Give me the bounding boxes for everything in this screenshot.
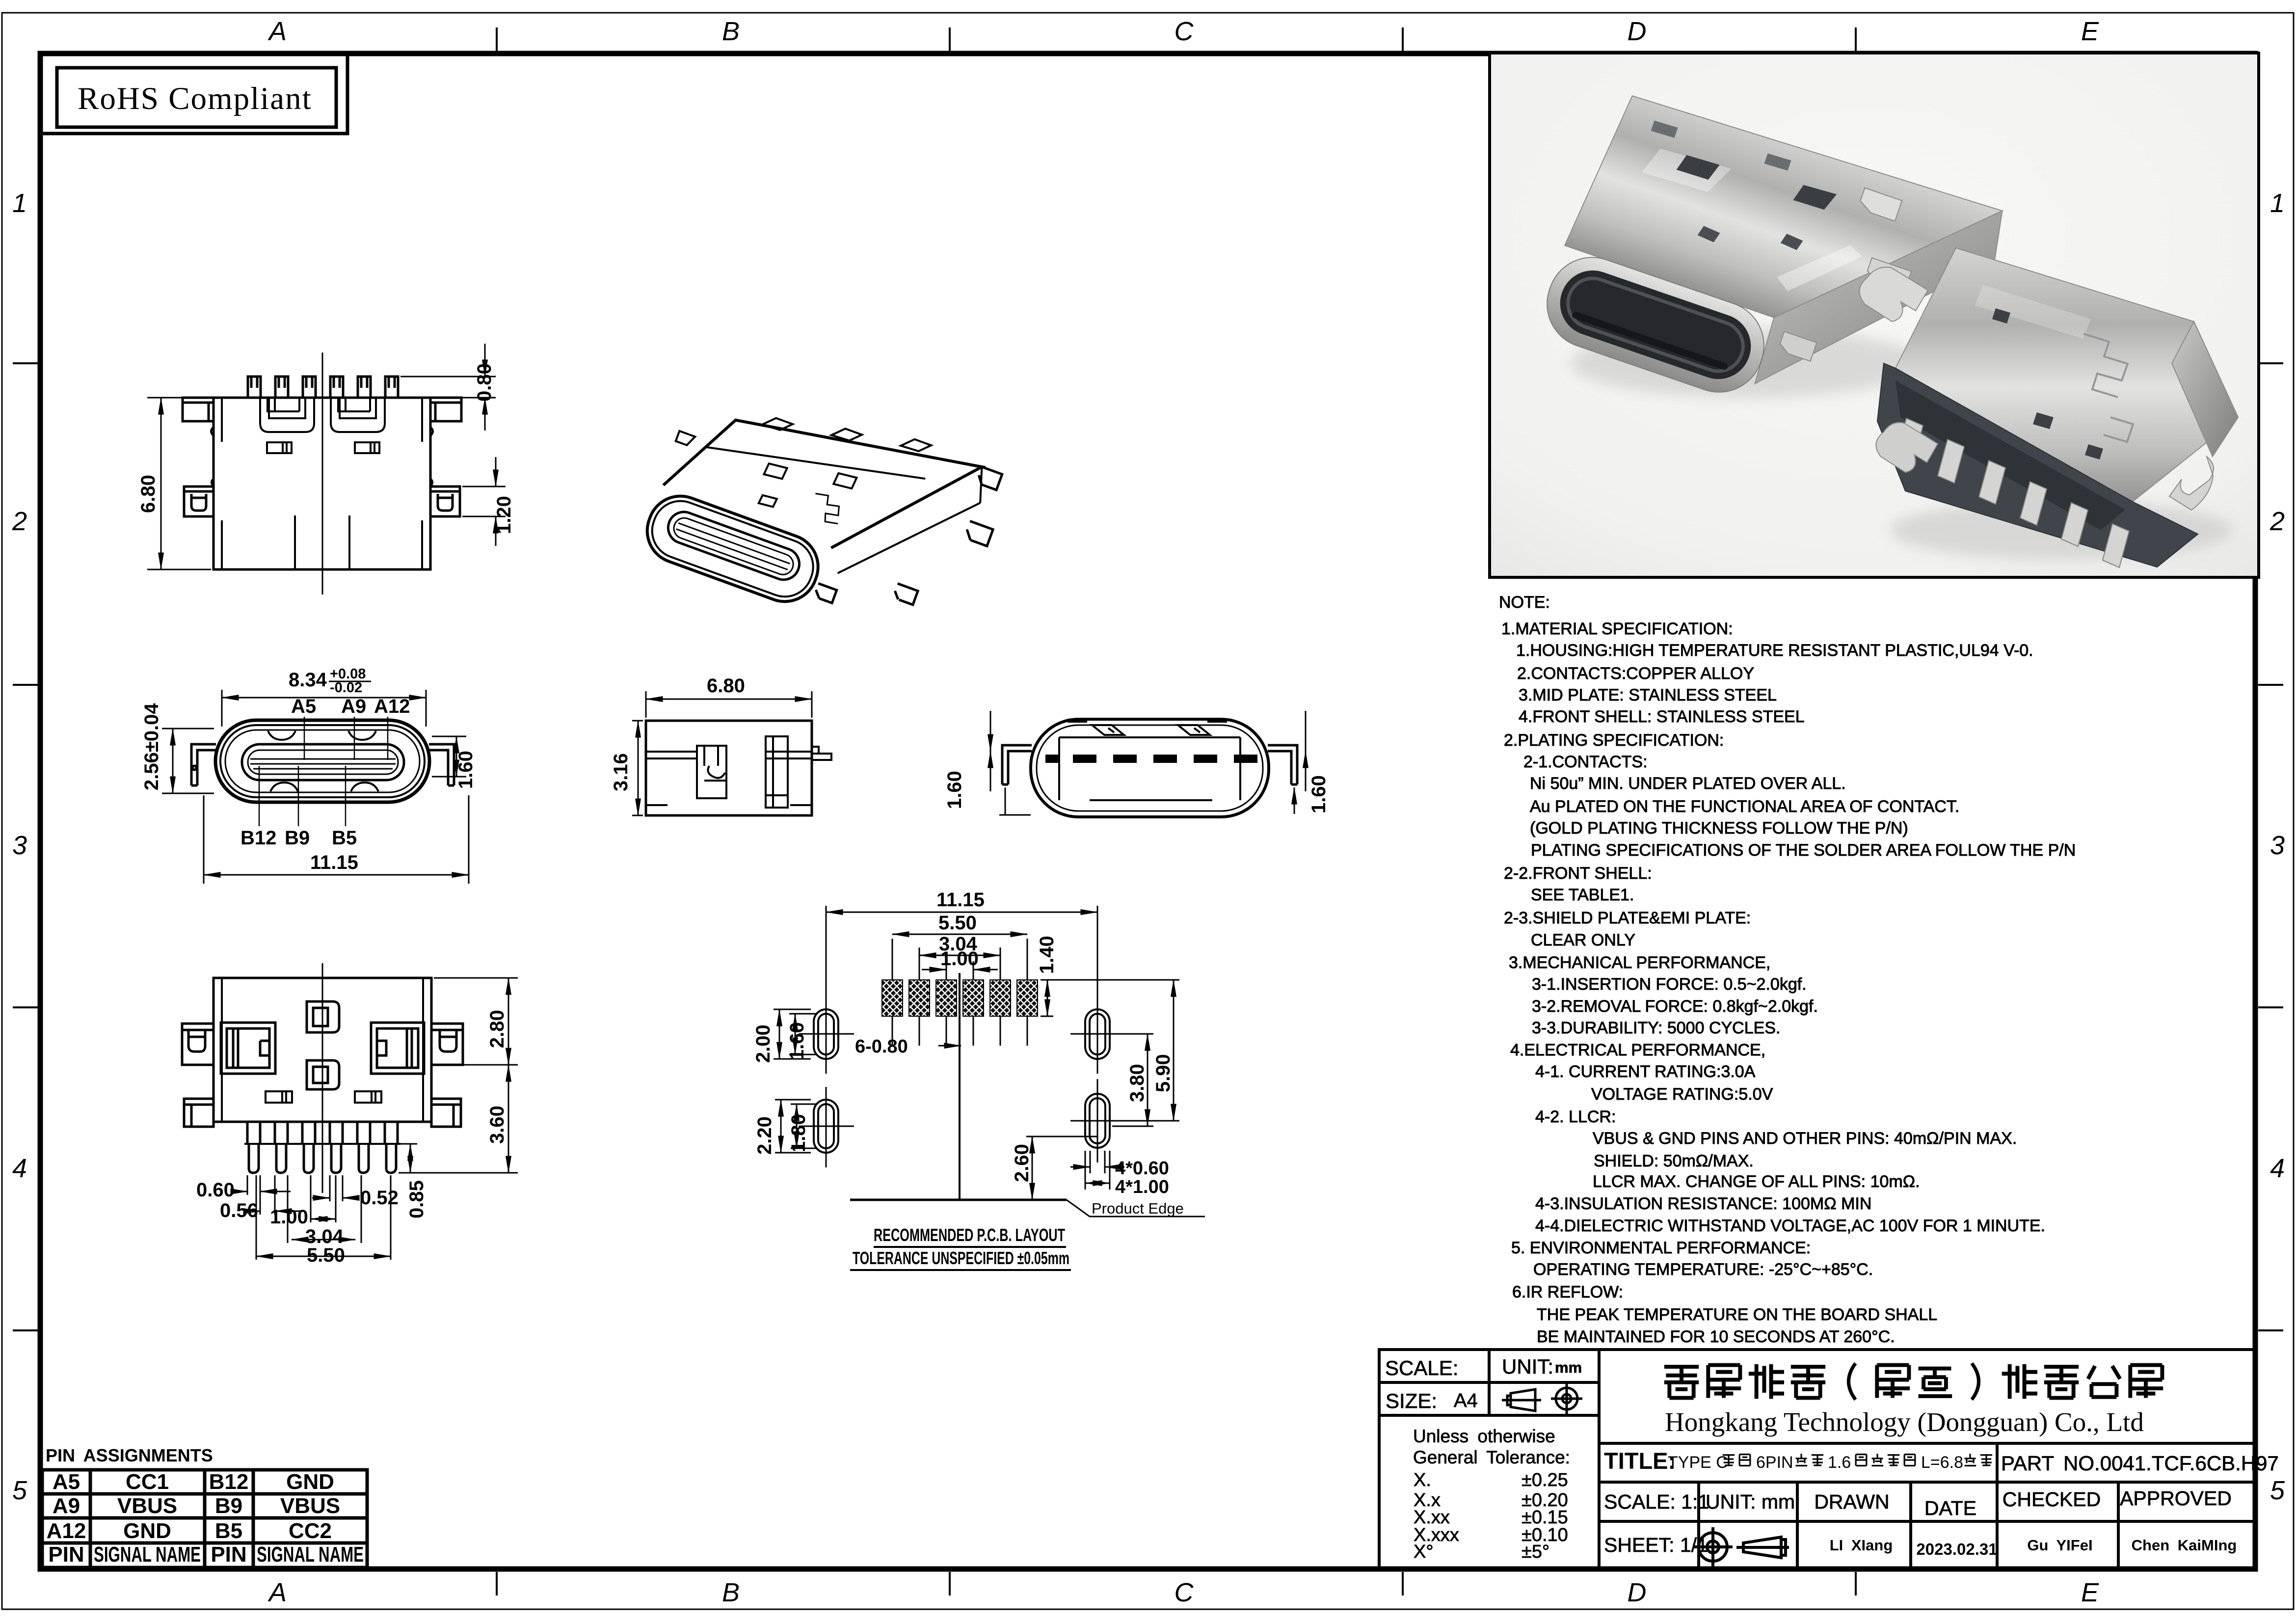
svg-text:±5°: ±5° xyxy=(1522,1542,1549,1562)
svg-text:0.85: 0.85 xyxy=(406,1180,427,1218)
svg-text:TITLE:: TITLE: xyxy=(1604,1448,1676,1474)
svg-text:B12: B12 xyxy=(209,1470,249,1494)
svg-text:6.80: 6.80 xyxy=(707,675,745,697)
svg-text:2.CONTACTS:COPPER ALLOY: 2.CONTACTS:COPPER ALLOY xyxy=(1517,664,1754,683)
svg-text:2-1.CONTACTS:: 2-1.CONTACTS: xyxy=(1523,753,1648,771)
svg-text:A: A xyxy=(267,17,287,46)
svg-text:4: 4 xyxy=(2270,1154,2285,1183)
svg-text:3-2.REMOVAL FORCE: 0.8kgf~2.0k: 3-2.REMOVAL FORCE: 0.8kgf~2.0kgf. xyxy=(1532,997,1818,1016)
svg-text:LI XIang: LI XIang xyxy=(1830,1537,1893,1554)
svg-text:1: 1 xyxy=(2270,189,2285,218)
svg-text:1.60: 1.60 xyxy=(1308,775,1330,813)
svg-text:3.MID PLATE: STAINLESS STEEL: 3.MID PLATE: STAINLESS STEEL xyxy=(1519,686,1777,704)
svg-text:0.60: 0.60 xyxy=(196,1179,235,1201)
svg-text:0.52: 0.52 xyxy=(360,1187,399,1209)
svg-text:X°: X° xyxy=(1414,1542,1434,1562)
svg-text:4*0.60: 4*0.60 xyxy=(1115,1158,1169,1179)
svg-text:DRAWN: DRAWN xyxy=(1814,1490,1889,1513)
svg-text:RoHS Compliant: RoHS Compliant xyxy=(78,81,312,116)
svg-text:NOTE:: NOTE: xyxy=(1499,593,1550,612)
svg-text:B12: B12 xyxy=(240,827,276,849)
svg-text:B: B xyxy=(722,17,740,46)
svg-text:CLEAR ONLY: CLEAR ONLY xyxy=(1531,931,1635,949)
svg-text:DATE: DATE xyxy=(1924,1497,1976,1519)
svg-text:6-0.80: 6-0.80 xyxy=(855,1036,908,1057)
svg-text:D: D xyxy=(1628,1578,1647,1607)
svg-text:2.PLATING SPECIFICATION:: 2.PLATING SPECIFICATION: xyxy=(1504,731,1724,750)
svg-text:C: C xyxy=(1175,17,1194,46)
svg-text:3-3.DURABILITY: 5000 CYCLES.: 3-3.DURABILITY: 5000 CYCLES. xyxy=(1532,1019,1780,1037)
svg-text:VBUS & GND PINS AND OTHER PINS: VBUS & GND PINS AND OTHER PINS: 40mΩ/PIN… xyxy=(1593,1129,2017,1148)
svg-text:1.6: 1.6 xyxy=(1828,1453,1851,1472)
svg-text:8.34: 8.34 xyxy=(289,669,327,691)
svg-text:SHEET: 1/1: SHEET: 1/1 xyxy=(1604,1534,1708,1556)
svg-text:SIZE:: SIZE: xyxy=(1386,1389,1437,1412)
svg-text:VOLTAGE RATING:5.0V: VOLTAGE RATING:5.0V xyxy=(1591,1085,1773,1104)
svg-text:LLCR MAX. CHANGE OF ALL PINS:: LLCR MAX. CHANGE OF ALL PINS: 10mΩ. xyxy=(1593,1172,1920,1191)
svg-text:3.MECHANICAL PERFORMANCE,: 3.MECHANICAL PERFORMANCE, xyxy=(1509,953,1770,972)
svg-text:Ni 50u” MIN. UNDER PLATED OVER: Ni 50u” MIN. UNDER PLATED OVER ALL. xyxy=(1530,774,1846,793)
svg-text:6.IR REFLOW:: 6.IR REFLOW: xyxy=(1512,1283,1623,1301)
svg-text:D: D xyxy=(1628,17,1647,46)
svg-text:4-2. LLCR:: 4-2. LLCR: xyxy=(1535,1108,1616,1126)
svg-text:E: E xyxy=(2081,17,2099,46)
svg-text:SIGNAL NAME: SIGNAL NAME xyxy=(257,1542,364,1567)
svg-text:GND: GND xyxy=(286,1470,334,1494)
svg-text:APPROVED: APPROVED xyxy=(2120,1487,2232,1510)
svg-text:X.: X. xyxy=(1414,1470,1431,1490)
svg-text:2.60: 2.60 xyxy=(1011,1144,1033,1182)
svg-text:5.50: 5.50 xyxy=(307,1244,345,1266)
svg-text:VBUS: VBUS xyxy=(117,1494,177,1518)
svg-text:2.20: 2.20 xyxy=(754,1116,775,1155)
svg-text:UNIT:: UNIT: xyxy=(1502,1355,1553,1378)
svg-text:PIN: PIN xyxy=(48,1542,84,1567)
svg-text:2.56±0.04: 2.56±0.04 xyxy=(141,703,162,790)
svg-text:Unless otherwise: Unless otherwise xyxy=(1413,1426,1555,1446)
svg-text:6.80: 6.80 xyxy=(137,475,159,513)
svg-text:1.00: 1.00 xyxy=(940,948,979,970)
svg-text:GND: GND xyxy=(123,1519,171,1543)
svg-text:5: 5 xyxy=(2270,1476,2285,1505)
svg-text:1.MATERIAL SPECIFICATION:: 1.MATERIAL SPECIFICATION: xyxy=(1501,620,1733,638)
svg-text:L=6.8: L=6.8 xyxy=(1921,1453,1963,1472)
svg-text:Gu YIFeI: Gu YIFeI xyxy=(2027,1537,2092,1554)
svg-text:A4: A4 xyxy=(1454,1390,1478,1411)
svg-text:5.50: 5.50 xyxy=(938,912,977,934)
svg-text:4-1. CURRENT RATING:3.0A: 4-1. CURRENT RATING:3.0A xyxy=(1535,1062,1756,1081)
svg-text:0.80: 0.80 xyxy=(474,363,495,402)
svg-text:A9: A9 xyxy=(341,696,366,717)
svg-text:Chen KaiMIng: Chen KaiMIng xyxy=(2132,1537,2237,1554)
svg-text:0.56: 0.56 xyxy=(220,1200,258,1221)
svg-text:A5: A5 xyxy=(291,696,316,717)
svg-text:A: A xyxy=(267,1578,287,1607)
svg-text:4.ELECTRICAL PERFORMANCE,: 4.ELECTRICAL PERFORMANCE, xyxy=(1510,1041,1765,1059)
svg-text:2023.02.31: 2023.02.31 xyxy=(1916,1540,1997,1558)
svg-text:B9: B9 xyxy=(215,1494,242,1518)
svg-text:3: 3 xyxy=(12,831,27,860)
svg-text:CC1: CC1 xyxy=(126,1470,169,1494)
svg-text:2-3.SHIELD PLATE&EMI PLATE:: 2-3.SHIELD PLATE&EMI PLATE: xyxy=(1504,909,1751,927)
svg-text:4.FRONT SHELL: STAINLESS STEEL: 4.FRONT SHELL: STAINLESS STEEL xyxy=(1519,707,1805,726)
svg-text:RECOMMENDED P.C.B. LAYOUT: RECOMMENDED P.C.B. LAYOUT xyxy=(874,1225,1065,1245)
svg-text:6PIN: 6PIN xyxy=(1756,1453,1793,1472)
svg-text:2-2.FRONT SHELL:: 2-2.FRONT SHELL: xyxy=(1504,864,1652,883)
svg-text:1.HOUSING:HIGH TEMPERATURE RES: 1.HOUSING:HIGH TEMPERATURE RESISTANT PLA… xyxy=(1516,641,2033,660)
svg-text:11.15: 11.15 xyxy=(310,852,358,873)
svg-text:A12: A12 xyxy=(47,1519,86,1543)
svg-text:C: C xyxy=(1175,1578,1194,1607)
svg-text:1.60: 1.60 xyxy=(944,771,965,809)
svg-text:5.90: 5.90 xyxy=(1152,1054,1174,1092)
svg-text:mm: mm xyxy=(1555,1359,1582,1376)
svg-text:General Tolerance:: General Tolerance: xyxy=(1413,1447,1570,1467)
svg-text:2: 2 xyxy=(2269,507,2285,536)
svg-text:2: 2 xyxy=(12,507,27,536)
svg-text:(GOLD PLATING THICKNESS FOLLOW: (GOLD PLATING THICKNESS FOLLOW THE P/N) xyxy=(1530,819,1908,838)
svg-text:CC2: CC2 xyxy=(289,1519,332,1543)
svg-text:4-3.INSULATION RESISTANCE: 100: 4-3.INSULATION RESISTANCE: 100MΩ MIN xyxy=(1535,1194,1871,1213)
svg-text:PIN: PIN xyxy=(211,1542,246,1567)
svg-text:1.60: 1.60 xyxy=(786,1022,808,1060)
svg-text:3.80: 3.80 xyxy=(1126,1064,1148,1102)
svg-text:Au PLATED ON THE FUNCTIONAL AR: Au PLATED ON THE FUNCTIONAL AREA OF CONT… xyxy=(1530,797,1959,816)
svg-text:4: 4 xyxy=(12,1154,27,1183)
svg-text:BE MAINTAINED FOR 10 SECONDS A: BE MAINTAINED FOR 10 SECONDS AT 260°C. xyxy=(1537,1327,1895,1346)
svg-text:±0.25: ±0.25 xyxy=(1522,1470,1568,1490)
svg-text:SEE TABLE1.: SEE TABLE1. xyxy=(1531,886,1634,904)
svg-text:3: 3 xyxy=(2270,831,2285,860)
svg-text:Hongkang Technology (Dongguan): Hongkang Technology (Dongguan) Co., Ltd xyxy=(1665,1407,2144,1437)
svg-text:THE PEAK TEMPERATURE ON THE BO: THE PEAK TEMPERATURE ON THE BOARD SHALL xyxy=(1537,1305,1937,1324)
svg-text:4*1.00: 4*1.00 xyxy=(1115,1177,1169,1197)
svg-text:CHECKED: CHECKED xyxy=(2002,1488,2101,1511)
svg-text:1.80: 1.80 xyxy=(788,1114,809,1152)
svg-text:PART NO.0041.TCF.6CB.H97: PART NO.0041.TCF.6CB.H97 xyxy=(2001,1452,2279,1475)
svg-text:2.80: 2.80 xyxy=(486,1010,508,1048)
svg-text:OPERATING TEMPERATURE: -25°C~+: OPERATING TEMPERATURE: -25°C~+85°C. xyxy=(1533,1260,1873,1279)
svg-text:PLATING SPECIFICATIONS OF THE: PLATING SPECIFICATIONS OF THE SOLDER ARE… xyxy=(1531,841,2076,860)
svg-text:Product Edge: Product Edge xyxy=(1092,1200,1184,1217)
svg-text:A9: A9 xyxy=(53,1494,80,1518)
svg-text:11.15: 11.15 xyxy=(936,889,985,911)
svg-text:1: 1 xyxy=(12,189,27,218)
svg-text:UNIT: mm: UNIT: mm xyxy=(1706,1490,1795,1513)
svg-text:1.60: 1.60 xyxy=(455,751,477,789)
svg-text:SIGNAL NAME: SIGNAL NAME xyxy=(94,1542,201,1567)
svg-text:3.60: 3.60 xyxy=(486,1106,508,1144)
svg-text:5. ENVIRONMENTAL PERFORMANCE:: 5. ENVIRONMENTAL PERFORMANCE: xyxy=(1511,1239,1811,1257)
svg-text:TYPE C: TYPE C xyxy=(1668,1453,1728,1472)
svg-text:B5: B5 xyxy=(332,827,357,849)
svg-text:SCALE:: SCALE: xyxy=(1385,1356,1458,1380)
svg-text:A12: A12 xyxy=(374,696,410,717)
svg-text:1.20: 1.20 xyxy=(493,496,515,534)
svg-text:5: 5 xyxy=(12,1476,27,1505)
svg-text:SCALE: 1:1: SCALE: 1:1 xyxy=(1604,1490,1709,1513)
svg-text:4-4.DIELECTRIC WITHSTAND VOLTA: 4-4.DIELECTRIC WITHSTAND VOLTAGE,AC 100V… xyxy=(1535,1217,2045,1235)
svg-text:3.16: 3.16 xyxy=(610,753,632,791)
svg-text:2.00: 2.00 xyxy=(752,1025,774,1063)
svg-text:VBUS: VBUS xyxy=(280,1494,340,1518)
svg-text:E: E xyxy=(2081,1578,2099,1607)
svg-text:1.00: 1.00 xyxy=(270,1206,308,1228)
svg-text:SHIELD: 50mΩ/MAX.: SHIELD: 50mΩ/MAX. xyxy=(1594,1152,1754,1170)
svg-text:TOLERANCE UNSPECIFIED ±0.05mm: TOLERANCE UNSPECIFIED ±0.05mm xyxy=(853,1248,1069,1268)
svg-text:B: B xyxy=(722,1578,740,1607)
svg-text:A5: A5 xyxy=(53,1470,80,1494)
svg-text:3-1.INSERTION FORCE: 0.5~2.0kg: 3-1.INSERTION FORCE: 0.5~2.0kgf. xyxy=(1532,975,1807,994)
svg-text:-0.02: -0.02 xyxy=(330,680,362,696)
svg-text:B5: B5 xyxy=(215,1519,242,1543)
svg-text:PIN ASSIGNMENTS: PIN ASSIGNMENTS xyxy=(46,1445,213,1465)
svg-text:1.40: 1.40 xyxy=(1036,936,1058,974)
svg-text:B9: B9 xyxy=(285,827,310,849)
